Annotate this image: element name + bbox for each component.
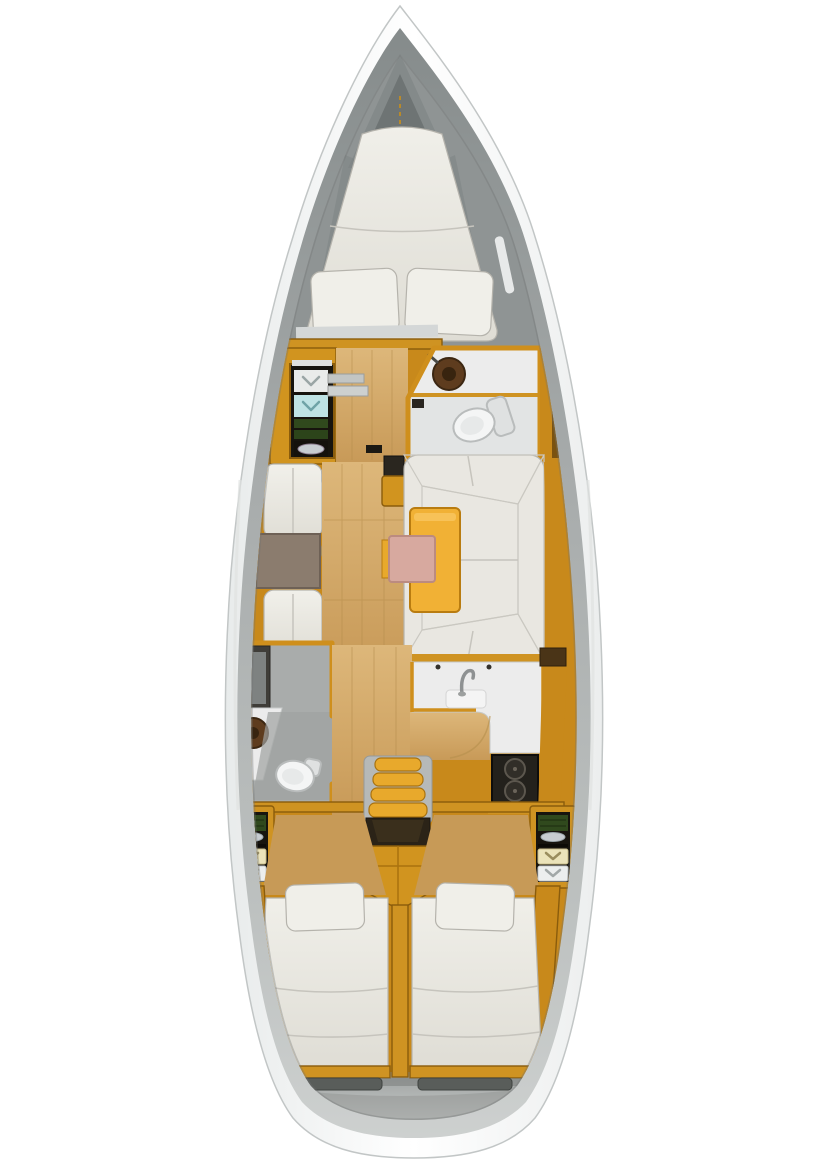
step-3 bbox=[371, 788, 425, 801]
step-4 bbox=[369, 803, 427, 817]
floorplan-canvas bbox=[0, 0, 828, 1173]
port-berth-pillow bbox=[285, 883, 365, 932]
step-2 bbox=[373, 773, 423, 786]
stern-locker-starboard bbox=[418, 1078, 512, 1090]
forward-head-shelf-trim bbox=[408, 393, 540, 397]
wardrobe-shelf-teal bbox=[294, 395, 328, 417]
forward-threshold bbox=[366, 445, 382, 453]
galley-knob-right bbox=[487, 665, 492, 670]
landing-inner bbox=[372, 820, 424, 842]
galley-knob-left bbox=[436, 665, 441, 670]
forward-step-lower bbox=[328, 386, 368, 396]
dinette-base-trim bbox=[404, 654, 544, 662]
locker-shelf-green bbox=[538, 815, 568, 831]
wardrobe-top-sliver bbox=[292, 360, 332, 366]
wardrobe-shelf-white bbox=[294, 370, 328, 392]
interior bbox=[228, 0, 590, 1172]
aft-cabin-entry-starboard bbox=[414, 815, 540, 895]
galley-faucet-base bbox=[458, 692, 466, 697]
step-1 bbox=[375, 758, 421, 771]
galley-floor bbox=[410, 712, 490, 760]
center-divider bbox=[392, 905, 408, 1077]
mast-post bbox=[384, 456, 404, 476]
forward-liner-strip bbox=[296, 325, 438, 339]
starboard-berth-pillow bbox=[435, 883, 515, 932]
wardrobe-basin-oval bbox=[298, 444, 324, 454]
forward-step-upper bbox=[328, 374, 364, 383]
galley-sink bbox=[446, 690, 486, 708]
salon-table-leaf bbox=[389, 536, 435, 582]
burner-center-dot bbox=[513, 789, 517, 793]
settee-end-cabinet bbox=[382, 476, 406, 506]
wardrobe-shelf-green-2 bbox=[294, 430, 328, 439]
cutting-board-slab bbox=[540, 648, 566, 666]
dinette bbox=[382, 455, 572, 662]
locker-shelf-white bbox=[538, 866, 568, 881]
locker-gap bbox=[538, 844, 568, 847]
salon-table-highlight bbox=[414, 513, 456, 521]
locker-silver-oval bbox=[541, 833, 565, 842]
chart-table bbox=[256, 534, 320, 588]
wardrobe-shelf-green-1 bbox=[294, 419, 328, 428]
forward-head-sink-drain bbox=[442, 367, 456, 381]
forward-head bbox=[408, 348, 566, 468]
stern-fin-port bbox=[254, 1072, 269, 1122]
locker-shelf-cream bbox=[538, 849, 568, 864]
yacht-floorplan bbox=[0, 0, 828, 1173]
burner-center-dot bbox=[513, 767, 517, 771]
forward-head-fitting bbox=[412, 399, 424, 408]
